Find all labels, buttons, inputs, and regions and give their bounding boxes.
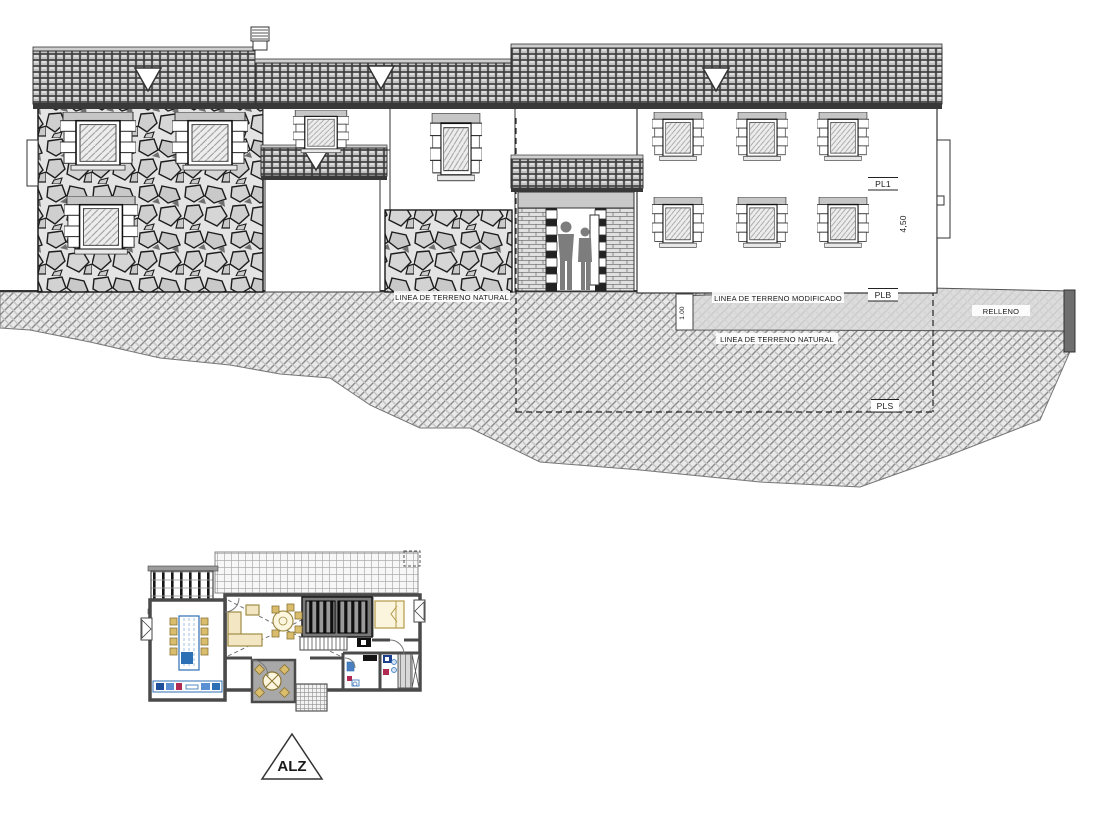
dim-100: 1.00 [679,306,686,320]
label-plb: PLB [868,288,898,301]
view-marker-alz: ALZ [262,734,322,779]
side-detail [937,196,944,205]
porch-pillar-right [606,208,634,291]
dim-450: 4,50 [898,215,908,232]
window [736,197,788,247]
window [60,112,136,170]
entrance-porch [511,155,643,291]
label-pl1: PL1 [868,177,898,190]
side-shutter-right [937,140,950,238]
eave-fascia [33,103,942,109]
porch-pillar-left [518,208,546,291]
window [430,113,482,181]
label-pls: PLS [871,399,899,412]
plan-deck [302,597,372,637]
elevation [27,27,950,293]
architectural-drawing: LINEA DE TERRENO NATURAL LINEA DE TERREN… [0,0,1104,816]
window [652,112,704,160]
svg-text:PLB: PLB [875,290,892,300]
window [293,110,349,153]
plan-bedroom [375,601,404,628]
plan-roof [215,552,418,593]
view-marker-label: ALZ [277,758,306,775]
window [736,112,788,160]
stone-low-wall [385,210,512,292]
label-relleno: RELLENO [983,307,1019,316]
drawing-sheet: LINEA DE TERRENO NATURAL LINEA DE TERREN… [0,0,1104,816]
plan-patio [252,660,295,702]
window [64,196,138,254]
ridge-right [511,44,942,48]
label-terreno-modificado: LINEA DE TERRENO MODIFICADO [714,294,842,303]
ridge-left [33,47,255,51]
label-terreno-natural-right: LINEA DE TERRENO NATURAL [720,335,834,344]
label-terreno-natural-left: LINEA DE TERRENO NATURAL [395,293,509,302]
plan-entry-pad [296,684,327,711]
svg-text:PLS: PLS [877,401,894,411]
svg-text:PL1: PL1 [875,179,891,189]
window [817,112,869,160]
eave-lower-mid [261,176,387,180]
window [817,197,869,247]
chimney [251,27,269,50]
ridge-mid [255,59,513,63]
floor-plan [141,551,425,711]
wall-middle-lower [265,178,380,292]
roof-right [511,48,942,104]
retaining-post [1064,290,1075,352]
window [652,197,704,247]
side-shutter-left [27,140,38,186]
window [172,112,248,170]
